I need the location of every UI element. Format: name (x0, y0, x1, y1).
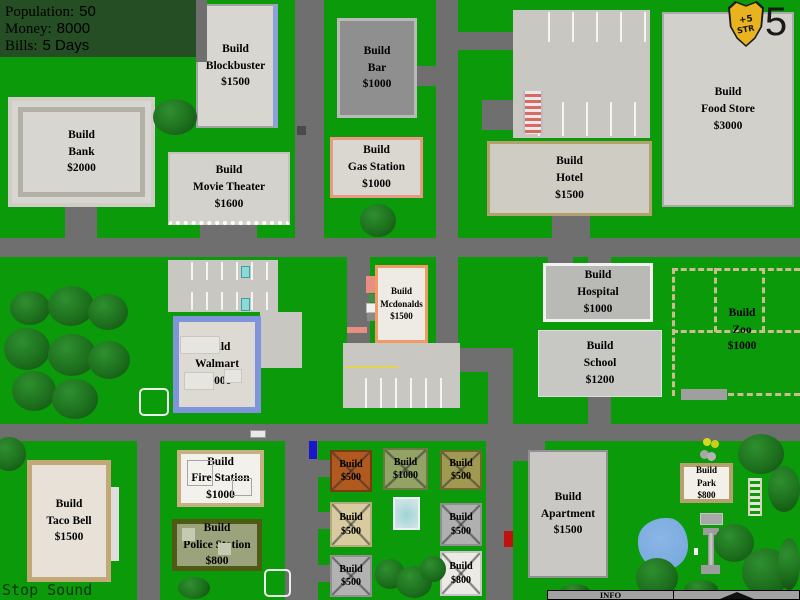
lot-price: $500 (451, 525, 471, 539)
lot-action: Build (449, 457, 472, 471)
hud-value: 5 Days (43, 37, 90, 54)
tree (88, 341, 130, 379)
walmart-roof-detail (224, 369, 242, 383)
hud-money: Money:8000 (5, 20, 191, 37)
hud-population: Population:50 (5, 3, 191, 20)
site-name: Blockbuster (206, 58, 265, 75)
police-roof-detail (182, 528, 195, 541)
site-price: $1000 (362, 176, 391, 193)
site-name: Park (697, 477, 716, 490)
site-price: $1000 (584, 301, 613, 318)
fire-station-bay (187, 460, 213, 486)
build-site-school[interactable]: Build School $1200 (538, 330, 662, 397)
build-lot-4[interactable]: Build $500 (330, 502, 372, 547)
fire-station-bay (232, 478, 252, 496)
mcdonalds-canopy (347, 327, 367, 333)
info-bar[interactable]: INFO (547, 590, 800, 600)
site-name: Taco Bell (46, 513, 91, 530)
lot-price: $500 (341, 525, 361, 539)
climbing-ladder (748, 478, 762, 516)
build-site-gas-station[interactable]: Build Gas Station $1000 (330, 137, 423, 198)
hud-shadow (196, 0, 207, 62)
parking-yellow-line (345, 366, 398, 368)
park-bench (700, 513, 723, 525)
site-name: Zoo (732, 322, 751, 339)
site-action: Build (556, 153, 583, 170)
parking-stripes (178, 292, 270, 310)
car (504, 531, 513, 547)
site-action: Build (363, 142, 390, 159)
flower (703, 438, 711, 446)
road-vertical-2 (436, 0, 458, 238)
car (250, 430, 266, 438)
site-price: $1500 (554, 522, 583, 539)
build-site-apartment[interactable]: Build Apartment $1500 (528, 450, 608, 578)
stop-sound-button[interactable]: Stop Sound (2, 581, 92, 599)
site-action: Build (729, 305, 756, 322)
park-light (694, 548, 698, 555)
build-site-blockbuster[interactable]: Build Blockbuster $1500 (196, 4, 278, 128)
swimming-pool (393, 497, 420, 530)
site-action: Build (364, 43, 391, 60)
connector-parking-1 (457, 32, 513, 50)
mcdonalds-menu-board (368, 294, 375, 302)
seesaw-base (701, 565, 720, 574)
lot-action: Build (339, 458, 362, 472)
site-action: Build (56, 496, 83, 513)
site-price: $1500 (221, 74, 250, 91)
site-price: $1200 (586, 372, 615, 389)
hud-label: Population: (5, 4, 74, 20)
build-site-taco-bell[interactable]: Build Taco Bell $1500 (27, 460, 111, 582)
site-name: Bank (68, 144, 94, 161)
site-name: Mcdonalds (380, 298, 423, 311)
road-vertical-5 (486, 441, 513, 600)
hud-bills: Bills:5 Days (5, 37, 191, 54)
info-expand-button[interactable] (674, 591, 799, 599)
tree (48, 286, 94, 326)
road-vertical-mid (436, 257, 458, 352)
site-price: $1500 (390, 310, 413, 323)
lot-price: $500 (341, 576, 361, 590)
site-name: Hospital (577, 284, 619, 301)
build-site-hospital[interactable]: Build Hospital $1000 (543, 263, 653, 322)
site-action: Build (696, 464, 717, 477)
site-action: Build (555, 489, 582, 506)
road-vertical-3 (137, 441, 160, 600)
site-name: Food Store (701, 101, 755, 118)
lot-price: $500 (341, 471, 361, 485)
seesaw-pole (708, 533, 714, 567)
walmart-drive-lane (260, 312, 302, 368)
site-price: $2000 (67, 160, 96, 177)
mcdonalds-window (367, 313, 375, 321)
site-name: Apartment (541, 506, 595, 523)
tree (178, 577, 210, 599)
build-site-mcdonalds[interactable]: Build Mcdonalds $1500 (375, 265, 428, 343)
shopping-cart-icon (241, 266, 250, 278)
parking-stripes (352, 378, 454, 408)
hud-value: 8000 (57, 20, 90, 37)
site-price: $3000 (714, 118, 743, 135)
build-site-movie-theater[interactable]: Build Movie Theater $1600 (168, 152, 290, 225)
tree (778, 538, 800, 590)
zoo-fence (728, 393, 800, 396)
tree (153, 99, 197, 135)
site-price: $1000 (363, 76, 392, 93)
build-site-hotel[interactable]: Build Hotel $1500 (487, 141, 652, 216)
lot-action: Build (449, 511, 472, 525)
site-name: School (584, 355, 617, 372)
site-action: Build (587, 338, 614, 355)
lot-action: Build (394, 456, 417, 470)
empty-lot-marker (139, 388, 169, 416)
tree (4, 328, 50, 370)
site-action: Build (222, 41, 249, 58)
site-price: $1000 (728, 338, 757, 355)
road-vertical-mid2 (488, 370, 513, 424)
build-site-park[interactable]: Build Park $800 (680, 463, 733, 503)
site-price: $800 (698, 489, 716, 502)
build-lot-5[interactable]: Build $500 (440, 503, 482, 546)
lot-action: Build (339, 511, 362, 525)
hud-label: Money: (5, 21, 52, 37)
flower (707, 452, 716, 461)
parking-stripes (526, 12, 646, 42)
site-action: Build (204, 520, 231, 537)
site-action: Build (216, 162, 243, 179)
site-price: $800 (206, 553, 229, 570)
flower (711, 440, 719, 448)
hud-value: 50 (79, 3, 96, 20)
road-horizontal-top (0, 238, 800, 257)
car (309, 441, 317, 459)
walmart-roof-detail (184, 372, 214, 390)
build-lot-2[interactable]: Build $1000 (383, 448, 428, 490)
strength-count: 5 (758, 0, 794, 50)
build-lot-7[interactable]: Build $800 (440, 551, 482, 596)
taco-bell-drive-lane (111, 487, 119, 561)
driveway-theater (200, 225, 257, 238)
build-site-bar[interactable]: Build Bar $1000 (337, 18, 417, 118)
walmart-roof-detail (180, 336, 220, 354)
site-name: Hotel (556, 170, 583, 187)
zoo-walkway (681, 389, 727, 400)
build-site-walmart[interactable]: Build Walmart $2000 (173, 316, 261, 413)
car (297, 126, 306, 135)
connector-parking-2 (482, 100, 513, 130)
road-horizontal-bottom (0, 424, 800, 441)
build-lot-3[interactable]: Build $500 (440, 450, 482, 490)
city-map: Build Blockbuster $1500 Build Bar $1000 … (0, 0, 800, 600)
build-lot-6[interactable]: Build $500 (330, 555, 372, 597)
tree (10, 291, 50, 325)
build-site-zoo[interactable]: Build Zoo $1000 (700, 303, 784, 357)
lot-price: $800 (451, 574, 471, 588)
chevron-up-icon (720, 592, 754, 599)
lot-action: Build (449, 560, 472, 574)
build-site-bank[interactable]: Build Bank $2000 (8, 97, 155, 207)
build-lot-1[interactable]: Build $500 (330, 450, 372, 492)
tree (12, 371, 56, 411)
road-vertical-1 (295, 0, 324, 238)
build-site-police-station[interactable]: Build Police Station $800 (172, 519, 262, 571)
hud-panel: Population:50 Money:8000 Bills:5 Days (0, 0, 196, 57)
site-price: $1000 (206, 487, 235, 504)
tree (420, 556, 446, 582)
lot-price: $1000 (393, 469, 418, 483)
lot-action: Build (339, 563, 362, 577)
site-name: Movie Theater (193, 179, 265, 196)
shopping-cart-icon (241, 298, 250, 311)
lot-price: $500 (451, 470, 471, 484)
tree (360, 204, 396, 237)
driveway-bar (415, 66, 438, 86)
site-action: Build (68, 127, 95, 144)
site-price: $1500 (55, 529, 84, 546)
info-label[interactable]: INFO (548, 591, 673, 599)
fire-escape-ladder (523, 91, 543, 134)
site-name: Bar (368, 60, 387, 77)
parking-stripes (178, 262, 270, 280)
tree (88, 294, 128, 330)
hud-label: Bills: (5, 38, 38, 54)
site-price: $1600 (215, 196, 244, 213)
site-action: Build (391, 285, 412, 298)
empty-lot-marker (264, 569, 291, 597)
tree (768, 466, 800, 512)
driveway-hotel (552, 216, 590, 238)
tree (0, 437, 26, 471)
driveway-school (588, 397, 611, 424)
site-action: Build (585, 267, 612, 284)
tree (52, 379, 98, 419)
police-roof-detail (218, 543, 231, 555)
site-action: Build (715, 84, 742, 101)
site-name: Gas Station (348, 159, 405, 176)
site-price: $1500 (555, 187, 584, 204)
driveway-bank (65, 207, 97, 238)
